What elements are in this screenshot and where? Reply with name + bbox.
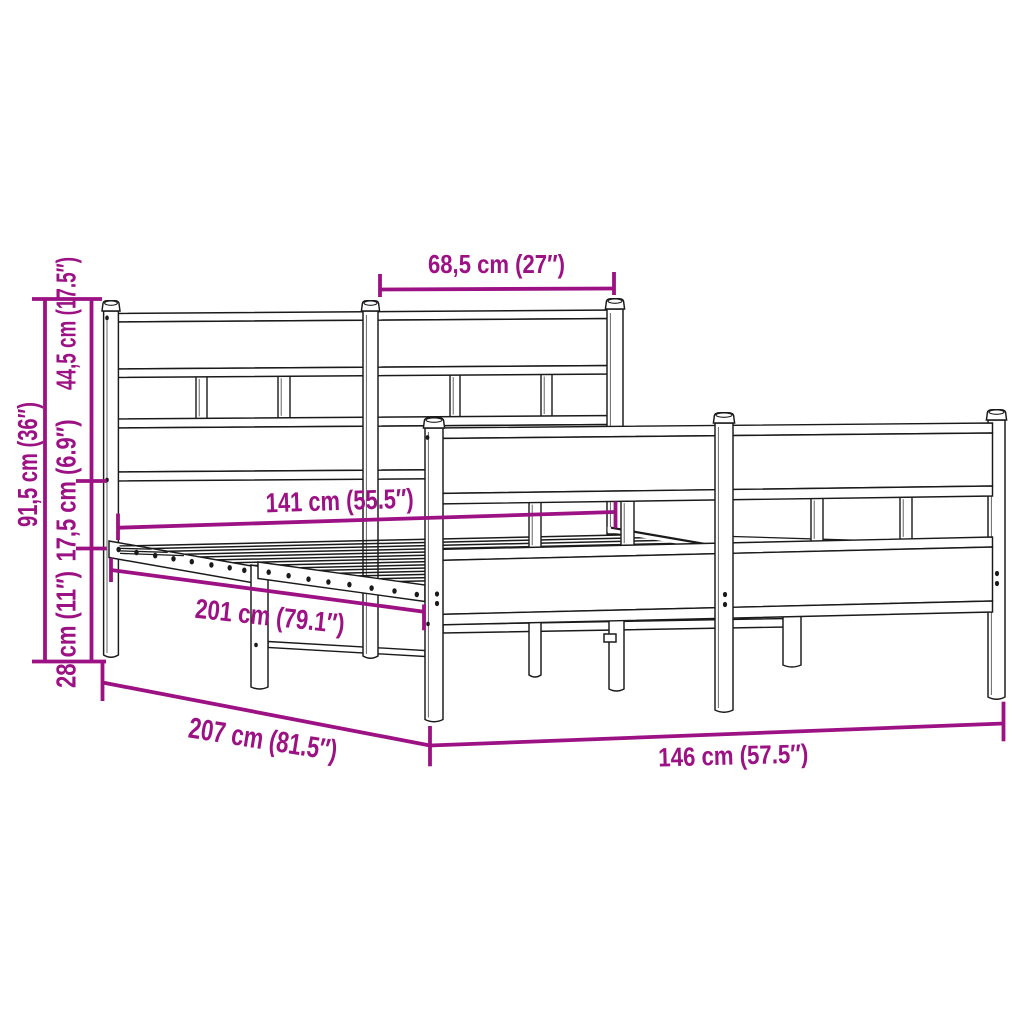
svg-text:44,5 cm (17.5″): 44,5 cm (17.5″) [51,257,82,390]
svg-text:146 cm (57.5″): 146 cm (57.5″) [658,739,809,773]
svg-text:91,5 cm (36″): 91,5 cm (36″) [12,402,43,527]
svg-text:68,5 cm (27″): 68,5 cm (27″) [428,249,565,279]
svg-text:141 cm (55.5″): 141 cm (55.5″) [265,483,414,519]
svg-text:28 cm (11″): 28 cm (11″) [51,571,82,688]
svg-text:17,5 cm (6.9″): 17,5 cm (6.9″) [51,420,82,562]
